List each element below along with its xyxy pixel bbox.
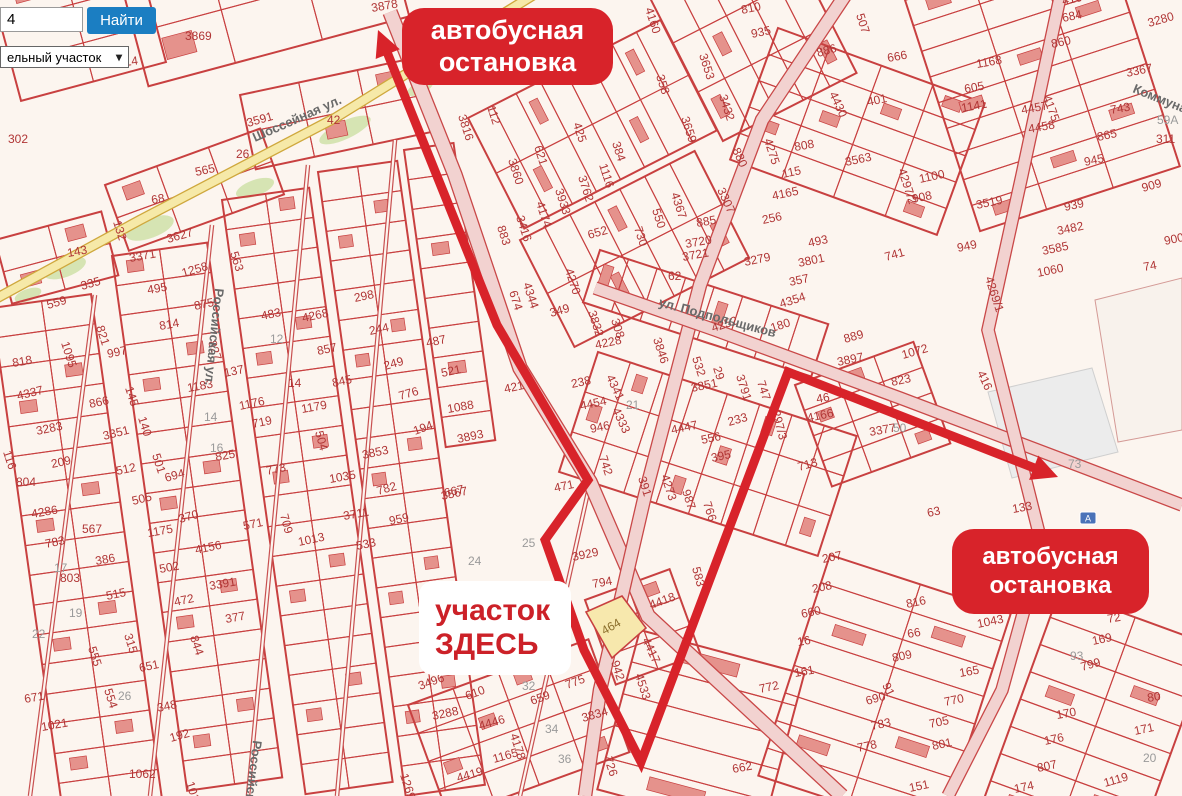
parcel-number-label: 4337	[15, 383, 45, 403]
parcel-number-label: 68	[150, 191, 166, 207]
cadastral-map-page: 3878386945143023591422656568132143362733…	[0, 0, 1182, 796]
parcel-number-label: 143	[66, 243, 88, 260]
parcel-number-label: 298	[353, 287, 376, 305]
parcel-number-label: 742	[596, 454, 616, 478]
parcel-number-label: 662	[731, 759, 753, 776]
parcel-number-label: 4341	[603, 372, 627, 402]
parcel-number-label: 165	[958, 663, 980, 680]
parcel-number-label: 845	[331, 372, 354, 390]
parcel-number-label: 559	[45, 293, 68, 312]
parcel-number-label: 1119	[1102, 769, 1130, 789]
parcel-number-label: 660	[800, 603, 823, 621]
parcel-number-label: 505	[130, 489, 153, 508]
parcel-number-label: 556	[700, 429, 723, 447]
parcel-block	[0, 294, 162, 796]
parcel-number-label: 26	[118, 689, 132, 703]
parcel-number-label: 504	[312, 429, 331, 452]
parcel-number-label: 939	[1063, 196, 1086, 214]
parcel-number-label: 421	[503, 378, 526, 396]
parcel-number-label: 59А	[1157, 113, 1178, 127]
parcel-number-label: 137	[223, 362, 246, 380]
parcel-number-label: 713	[796, 455, 819, 474]
parcel-number-label: 358	[653, 73, 673, 97]
parcel-number-label: 4160	[642, 6, 664, 36]
parcel-number-label: 605	[963, 79, 985, 96]
parcel-number-label: 233	[726, 410, 749, 429]
parcel-number-label: 471	[553, 477, 576, 495]
parcel-number-label: 521	[440, 362, 463, 380]
parcel-number-label: 857	[316, 340, 339, 358]
parcel-number-label: 26	[236, 147, 250, 161]
parcel-number-label: 808	[793, 137, 815, 154]
parcel-number-label: 73	[1068, 457, 1082, 471]
large-parcel	[1095, 278, 1182, 442]
parcel-number-label: 24	[468, 554, 482, 568]
parcel-number-label: 3351	[101, 423, 131, 443]
parcel-number-label: 34	[545, 722, 559, 736]
parcel-number-label: 3801	[797, 251, 826, 270]
street-name-label: Российская ул.	[238, 740, 265, 796]
parcel-number-label: 3816	[455, 113, 477, 143]
parcel-number-label: 818	[11, 353, 33, 370]
parcel-number-label: 610	[463, 683, 487, 703]
parcel-number-label: 171	[1133, 720, 1156, 738]
parcel-number-label: 889	[842, 327, 865, 346]
parcel-number-label: 1168	[975, 53, 1003, 71]
parcel-number-label: 256	[761, 209, 784, 227]
parcel-number-label: 21	[626, 398, 640, 412]
parcel-number-label: 93	[1070, 649, 1084, 663]
parcel-number-label: 705	[928, 713, 951, 731]
map-canvas[interactable]: 3878386945143023591422656568132143362733…	[0, 0, 1182, 796]
parcel-number-label: 244	[368, 320, 391, 338]
parcel-number-label: 3585	[1041, 239, 1070, 258]
parcel-number-label: 567	[82, 522, 102, 536]
search-input[interactable]	[0, 7, 83, 32]
parcel-number-label: 772	[758, 678, 781, 696]
parcel-number-label: 4174	[533, 200, 555, 230]
parcel-number-label: 4165	[771, 184, 800, 203]
parcel-number-label: 16	[796, 633, 812, 649]
parcel-number-label: 169	[1091, 630, 1114, 648]
parcel-number-label: 709	[277, 512, 296, 535]
parcel-number-label: 145	[122, 385, 142, 409]
parcel-number-label: 1269	[397, 772, 419, 796]
parcel-number-label: 550	[649, 207, 669, 231]
parcel-number-label: 22	[32, 627, 46, 641]
parcel-number-label: 335	[79, 274, 102, 293]
plot-here-annotation: участок ЗДЕСЬ	[419, 581, 571, 675]
parcel-number-label: 1176	[238, 394, 266, 413]
parcel-number-label: 472	[173, 591, 196, 609]
parcel-number-label: 357	[788, 271, 811, 289]
parcel-number-label: 741	[883, 245, 906, 264]
parcel-number-label: 3653	[696, 52, 718, 82]
parcel-number-label: 192	[168, 726, 191, 745]
parcel-number-label: 794	[591, 574, 613, 591]
parcel-number-label: 502	[158, 559, 180, 576]
parcel-number-label: 1060	[1036, 261, 1065, 280]
parcel-number-label: 949	[956, 237, 979, 255]
parcel-number-label: 555	[85, 645, 105, 669]
bus-stop-icon: А	[1080, 512, 1096, 524]
parcel-number-label: 16	[210, 441, 224, 455]
parcel-number-label: 684	[1061, 7, 1084, 25]
parcel-number-label: 377	[224, 609, 246, 626]
parcel-number-label: 946	[589, 418, 612, 436]
parcel-number-label: 1165	[491, 745, 520, 766]
parcel-number-label: 3846	[650, 336, 672, 366]
parcel-number-label: 62	[668, 269, 682, 283]
parcel-number-label: 386	[94, 551, 116, 568]
parcel-number-label: 302	[8, 132, 28, 146]
parcel-number-label: 935	[750, 23, 773, 41]
parcel-number-label: 14	[204, 410, 218, 424]
parcel-number-label: 3851	[690, 376, 719, 395]
parcel-number-label: 900	[1163, 230, 1182, 248]
parcel-number-label: 532	[689, 355, 709, 379]
parcel-number-label: 4446	[477, 712, 507, 733]
parcel-number-label: 1013	[297, 530, 326, 549]
parcel-number-label: 959	[388, 510, 411, 528]
parcel-number-label: 770	[943, 691, 966, 709]
parcel-number-label: 821	[93, 324, 113, 348]
parcel-number-label: 942	[608, 659, 628, 683]
parcel-number-label: 3762	[575, 174, 597, 204]
parcel-number-label: 571	[242, 515, 265, 533]
layer-type-select[interactable]: ельный участок ▾	[0, 46, 129, 68]
parcel-block	[730, 28, 985, 235]
parcel-number-label: 208	[811, 578, 834, 596]
parcel-number-label: 315	[121, 632, 141, 656]
parcel-number-label: 997	[106, 343, 129, 361]
parcel-number-label: 690	[864, 689, 887, 708]
parcel-number-label: 666	[886, 48, 908, 65]
parcel-number-label: 209	[50, 453, 73, 471]
parcel-number-label: 3563	[844, 150, 873, 169]
parcel-number-label: 151	[908, 777, 931, 795]
parcel-number-label: 1141	[960, 97, 988, 115]
parcel-number-label: 116	[0, 449, 19, 472]
parcel-number-label: 32	[522, 679, 536, 693]
parcel-number-label: 238	[570, 373, 593, 391]
chevron-down-icon: ▾	[116, 50, 122, 64]
parcel-number-label: 395	[710, 447, 733, 465]
layer-select-value: ельный участок	[7, 50, 101, 65]
bus-stop-annotation-top-line2: остановка	[402, 47, 613, 79]
parcel-number-label: 25	[522, 536, 536, 550]
parcel-number-label: 652	[586, 223, 609, 242]
parcel-number-label: 3897	[836, 350, 865, 369]
parcel-number-label: 3869	[185, 29, 212, 43]
parcel-number-label: 533	[355, 535, 378, 553]
parcel-number-label: 3832	[585, 309, 607, 339]
parcel-number-label: 883	[494, 224, 514, 248]
parcel-number-label: 80	[1146, 689, 1162, 705]
parcel-number-label: 311	[1156, 132, 1175, 146]
parcel-number-label: 115	[781, 163, 803, 181]
parcel-number-label: 425	[570, 121, 590, 145]
parcel-number-label: 3280	[1146, 9, 1176, 30]
parcel-number-label: 515	[105, 585, 128, 603]
parcel-number-label: 1021	[40, 715, 69, 733]
parcel-block	[905, 0, 1180, 231]
parcel-number-label: 493	[807, 232, 830, 250]
parcel-number-label: 3416	[513, 214, 535, 244]
parcel-number-label: 816	[905, 593, 928, 611]
parcel-block	[120, 0, 409, 86]
parcel-number-label: 860	[1050, 33, 1073, 51]
parcel-number-label: 814	[158, 316, 180, 333]
parcel-number-label: 4275	[761, 137, 783, 167]
parcel-number-label: 4270	[562, 267, 584, 297]
parcel-number-label: 783	[870, 715, 893, 733]
parcel-number-label: 483	[260, 305, 283, 323]
parcel-number-label: 174	[1013, 778, 1036, 796]
bus-stop-annotation-top-line1: автобусная	[402, 15, 613, 47]
parcel-number-label: 3367	[1125, 61, 1154, 80]
parcel-number-label: 19	[69, 606, 83, 620]
parcel-number-label: 3791	[733, 373, 755, 403]
parcel-number-label: 3659	[678, 115, 700, 145]
parcel-number-label: 766	[700, 500, 720, 524]
parcel-number-label: 17	[54, 561, 68, 575]
parcel-number-label: 487	[425, 332, 448, 350]
parcel-number-label: 4367	[668, 191, 690, 221]
parcel-number-label: 50	[893, 421, 907, 435]
parcel-number-label: 1062	[129, 767, 156, 781]
parcel-number-label: 4286	[30, 502, 59, 520]
parcel-number-label: 12	[270, 332, 284, 346]
parcel-number-label: 507	[853, 12, 873, 36]
parcel-number-label: 823	[890, 371, 913, 389]
parcel-number-label: 1043	[976, 612, 1005, 631]
bus-stop-annotation-right-line2: остановка	[952, 572, 1149, 600]
bus-stop-annotation-top: автобусная остановка	[402, 8, 613, 85]
bus-stop-annotation-right: автобусная остановка	[952, 529, 1149, 614]
parcel-number-label: 249	[382, 354, 405, 373]
parcel-number-label: 801	[931, 735, 954, 753]
parcel-number-label: 348	[156, 697, 179, 715]
parcel-number-label: 1035	[328, 467, 357, 485]
parcel-number-label: 4417	[639, 635, 663, 665]
parcel-number-label: 66	[906, 625, 922, 641]
parcel-number-label: 747	[754, 379, 774, 403]
parcel-number-label: 651	[138, 657, 161, 675]
parcel-number-label: 563	[227, 250, 247, 274]
parcel-number-label: 42	[327, 113, 341, 127]
parcel-number-label: 4268	[301, 306, 330, 325]
parcel-number-label: 809	[891, 647, 914, 665]
parcel-number-label: 4457	[1020, 98, 1049, 116]
svg-text:А: А	[1085, 514, 1091, 524]
parcel-number-label: 4354	[778, 289, 808, 311]
parcel-number-label: 804	[16, 475, 36, 489]
parcel-number-label: 775	[563, 672, 587, 692]
parcel-number-label: 512	[115, 460, 138, 478]
parcel-number-label: 1095	[58, 340, 80, 370]
parcel-number-label: 495	[146, 280, 168, 297]
parcel-number-label: 63	[926, 503, 942, 520]
parcel-number-label: 384	[609, 140, 629, 164]
parcel-number-label: 36	[558, 752, 572, 766]
parcel-number-label: 20	[1143, 751, 1157, 765]
parcel-number-label: 945	[1083, 151, 1106, 169]
parcel-number-label: 865	[1096, 126, 1119, 144]
bus-stop-annotation-right-line1: автобусная	[952, 543, 1149, 571]
parcel-number-label: 719	[251, 413, 274, 431]
parcel-number-label: 14	[288, 376, 302, 390]
parcel-number-label: 161	[793, 663, 815, 680]
parcel-number-label: 4156	[194, 538, 223, 557]
plot-here-line2: ЗДЕСЬ	[435, 628, 571, 663]
parcel-number-label: 207	[821, 548, 844, 566]
parcel-number-label: 194	[411, 418, 435, 438]
parcel-number-label: 3860	[505, 157, 527, 187]
parcel-number-label: 807	[1036, 757, 1059, 775]
plot-here-line1: участок	[435, 594, 571, 629]
parcel-number-label: 3283	[35, 419, 64, 438]
find-button[interactable]: Найти	[87, 7, 156, 34]
parcel-number-label: 170	[1055, 705, 1077, 722]
parcel-number-label: 726	[601, 755, 621, 779]
parcel-number-label: 3482	[1056, 219, 1085, 238]
parcel-number-label: 74	[1142, 258, 1158, 274]
parcel-number-label: 908	[911, 188, 934, 206]
parcel-number-label: 3853	[361, 443, 390, 462]
